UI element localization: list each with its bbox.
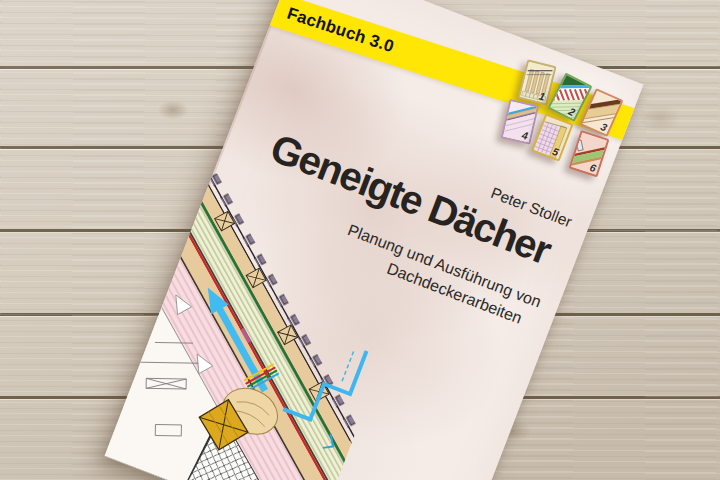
layer-detail-icon [503,101,536,142]
chapter-thumbnail-4: 4 [501,99,539,145]
chapter-thumbnail-6: 6 [569,130,610,177]
series-band-label: Fachbuch 3.0 [283,0,399,63]
photo-scene: Fachbuch 3.0 1 [0,0,720,480]
